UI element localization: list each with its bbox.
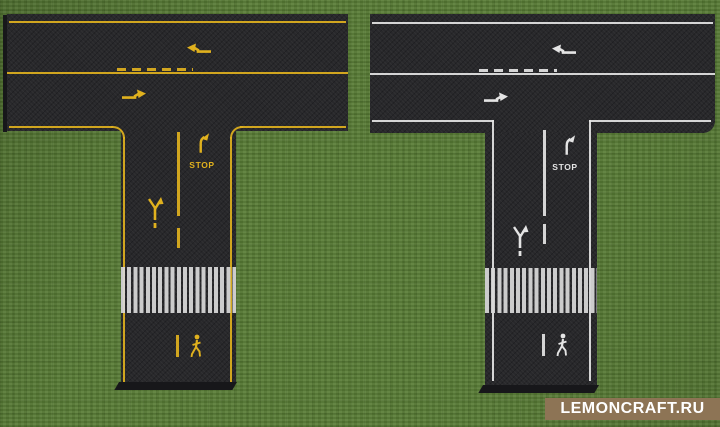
pedestrian-icon <box>554 333 571 357</box>
merge-arrow-icon <box>510 224 530 256</box>
stem-edge-line-right <box>589 120 591 381</box>
lane-divider-dash <box>177 228 180 248</box>
lane-turn-arrow-icon <box>482 92 508 104</box>
center-line-dashes <box>479 69 557 71</box>
lane-divider-solid <box>543 130 546 216</box>
lane-turn-arrow-icon <box>187 43 213 55</box>
edge-line-bottom-left <box>372 120 494 122</box>
crosswalk <box>485 268 597 313</box>
turn-right-arrow-icon <box>197 132 210 153</box>
stem-edge-line-left <box>492 120 494 381</box>
stop-text: STOP <box>540 162 590 172</box>
edge-line-bottom-left <box>9 126 113 128</box>
watermark-banner: LEMONCRAFT.RU <box>545 398 720 420</box>
pedestrian-icon <box>188 334 205 358</box>
yellow-t-intersection-road: STOP <box>7 14 348 392</box>
pedestrian-lane-dash <box>176 335 179 357</box>
edge-line-top <box>9 21 346 23</box>
watermark-text: LEMONCRAFT.RU <box>560 398 704 420</box>
center-line-dashes <box>117 68 193 70</box>
lane-divider-dash <box>543 224 546 244</box>
edge-line-top <box>372 22 713 24</box>
road-side-face <box>478 385 599 393</box>
edge-line-bottom-right <box>589 120 711 122</box>
minecraft-grass-scene: STOP STOP <box>0 0 720 427</box>
merge-arrow-icon <box>145 196 165 228</box>
road-side-face <box>114 382 237 390</box>
lane-turn-arrow-icon <box>552 44 578 56</box>
stop-text: STOP <box>177 160 227 170</box>
edge-line-bottom-right <box>240 126 346 128</box>
center-line <box>370 73 715 75</box>
center-line <box>7 72 348 74</box>
turn-right-arrow-icon <box>563 134 576 155</box>
lane-divider-solid <box>177 132 180 216</box>
pedestrian-lane-dash <box>542 334 545 356</box>
lane-turn-arrow-icon <box>120 89 146 101</box>
crosswalk <box>121 267 236 313</box>
stem-edge-line-right <box>230 137 232 382</box>
stem-edge-line-left <box>123 137 125 382</box>
white-t-intersection-road: STOP <box>370 14 715 394</box>
